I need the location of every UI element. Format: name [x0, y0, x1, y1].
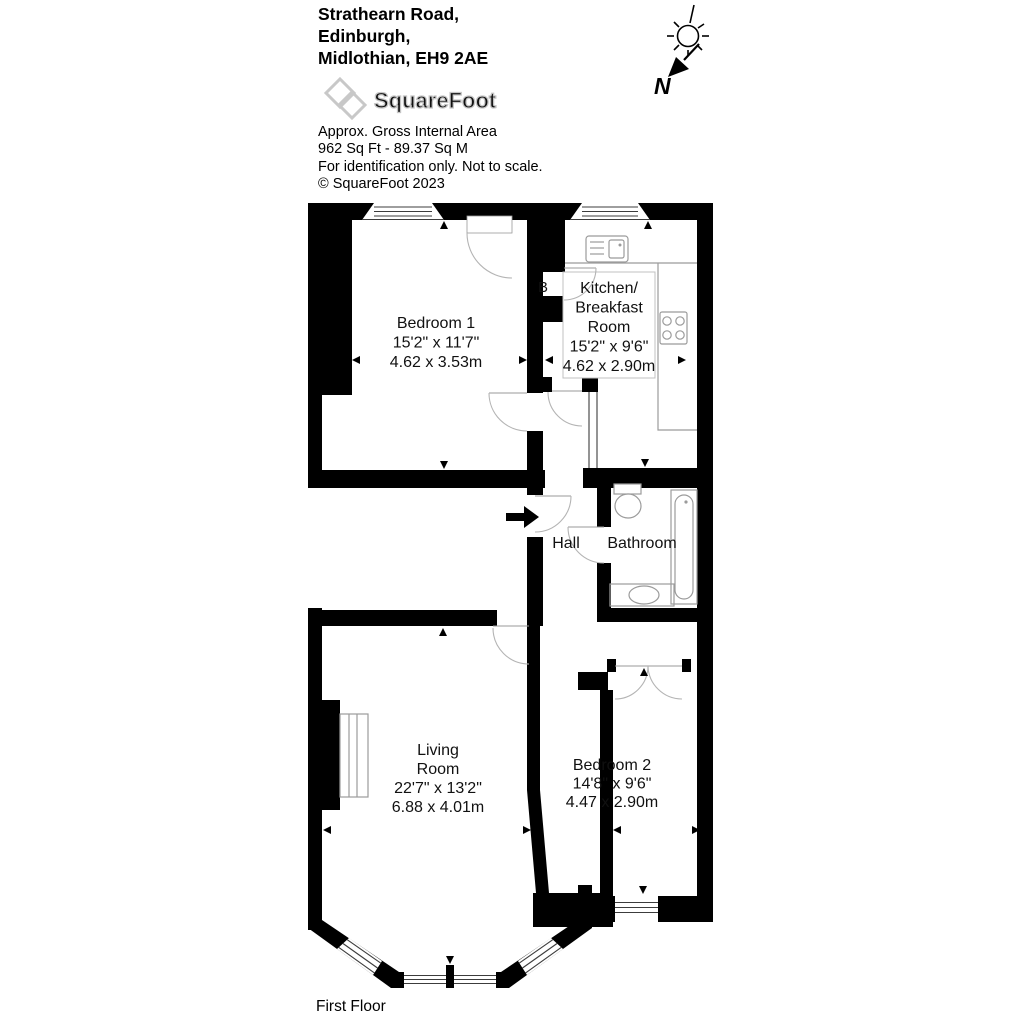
wall-segment	[533, 377, 552, 392]
toilet-cistern-icon	[614, 484, 641, 494]
dimension-arrow	[440, 461, 448, 469]
hob-ring	[676, 317, 684, 325]
door-swing-arc	[548, 392, 582, 426]
bathroom-sink-icon	[629, 586, 659, 604]
door-swing-arc	[489, 393, 527, 431]
hob-ring	[663, 331, 671, 339]
sun-icon	[678, 26, 699, 47]
wall-segment	[600, 690, 613, 896]
dimension-arrow	[440, 221, 448, 229]
wall-segment	[540, 264, 565, 272]
hob-ring	[676, 331, 684, 339]
wall-segment	[582, 377, 598, 392]
north-arrow-icon	[668, 57, 689, 77]
room-dims-imperial: 15'2" x 11'7"	[393, 335, 480, 352]
dimension-arrow	[639, 886, 647, 894]
room-name: Bathroom	[607, 535, 676, 552]
wall-segment	[527, 537, 543, 610]
dimension-arrow	[678, 356, 686, 364]
wall-segment	[527, 220, 543, 393]
hob-icon	[660, 312, 687, 344]
sun-rays-icon	[667, 5, 709, 56]
room-name: Bedroom 2	[573, 757, 651, 774]
dimension-arrow	[641, 459, 649, 467]
wall-segment	[527, 626, 540, 790]
wall-segment	[308, 470, 545, 488]
room-name: Breakfast	[575, 300, 643, 317]
floor-label: First Floor	[316, 998, 386, 1016]
wall-segment	[578, 672, 608, 690]
dimension-arrow	[644, 221, 652, 229]
floorplan-page: Strathearn Road, Edinburgh, Midlothian, …	[0, 0, 1024, 1024]
hob-ring	[663, 317, 671, 325]
fireplace-icon	[340, 714, 368, 797]
bath-tap-dot	[684, 500, 687, 503]
wall-segment	[308, 608, 322, 930]
room-dims-metric: 4.47 x 2.90m	[566, 794, 659, 811]
wall-segment	[322, 220, 352, 395]
window-opening	[615, 896, 658, 922]
dimension-arrow	[545, 356, 553, 364]
dimension-arrow	[446, 956, 454, 964]
door-swing-arc	[535, 496, 571, 532]
room-name: Bedroom 1	[397, 315, 475, 332]
dimension-arrow	[519, 356, 527, 364]
wall-segment	[597, 488, 611, 527]
wall-segment	[527, 488, 543, 495]
wall-segment	[527, 790, 549, 893]
dimension-arrow	[613, 826, 621, 834]
bay-mullion	[446, 965, 454, 988]
room-name: Living	[417, 742, 459, 759]
door-swing-arc	[648, 666, 682, 699]
room-dims-metric: 6.88 x 4.01m	[392, 799, 485, 816]
wall-segment	[308, 610, 497, 626]
wall-segment	[697, 203, 713, 922]
chimney-breast	[322, 700, 340, 810]
wall-segment	[658, 896, 713, 922]
wall-segment	[597, 563, 611, 608]
north-label: N	[654, 73, 671, 99]
boiler-label: B	[538, 279, 548, 296]
door-swing-arc	[467, 233, 512, 278]
compass: N	[654, 5, 709, 99]
wall-segment	[583, 468, 713, 488]
door-leaf	[467, 216, 512, 233]
dimension-arrow	[323, 826, 331, 834]
door-jamb	[682, 659, 691, 672]
floor-plan: N	[0, 0, 1024, 1024]
room-name: Kitchen/	[580, 280, 638, 297]
room-name: Room	[588, 319, 631, 336]
toilet-icon	[615, 494, 641, 518]
entrance-arrow-icon	[506, 506, 539, 528]
dimension-arrow	[523, 826, 531, 834]
dimension-arrow	[439, 628, 447, 636]
wall-segment	[527, 431, 543, 488]
room-dims-imperial: 22'7" x 13'2"	[394, 780, 482, 797]
sink-tap-dot	[619, 244, 622, 247]
wall-segment	[308, 203, 322, 488]
door-swing-arc	[493, 628, 529, 664]
room-dims-imperial: 14'8" x 9'6"	[573, 776, 652, 793]
wall-segment	[527, 610, 543, 626]
room-dims-metric: 4.62 x 3.53m	[390, 354, 483, 371]
room-dims-imperial: 15'2" x 9'6"	[570, 339, 649, 356]
dimension-arrow	[640, 668, 648, 676]
wall-segment	[533, 893, 613, 927]
wall-segment	[597, 608, 713, 622]
room-name: Hall	[552, 535, 580, 552]
room-name: Room	[417, 761, 460, 778]
dimension-arrow	[352, 356, 360, 364]
room-dims-metric: 4.62 x 2.90m	[563, 358, 656, 375]
door-jamb	[607, 659, 616, 672]
